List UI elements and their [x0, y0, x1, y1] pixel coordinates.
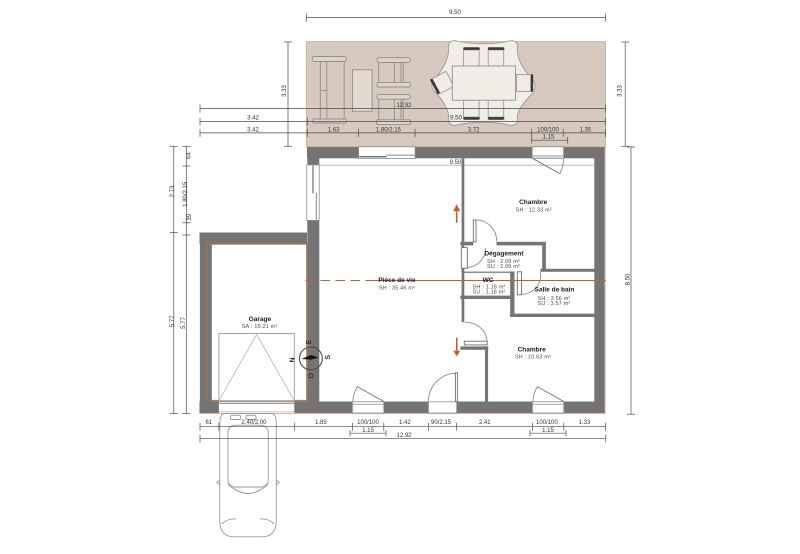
svg-text:3.42: 3.42: [247, 116, 259, 122]
svg-text:12.92: 12.92: [396, 103, 412, 109]
svg-text:SU : 2.09 m²: SU : 2.09 m²: [487, 264, 520, 270]
svg-text:5.77: 5.77: [170, 315, 176, 327]
svg-text:9.50: 9.50: [449, 10, 461, 16]
svg-text:9.50: 9.50: [450, 160, 462, 166]
svg-text:1.15: 1.15: [543, 135, 555, 141]
svg-text:3.33: 3.33: [618, 85, 624, 97]
svg-text:8.50: 8.50: [626, 273, 632, 285]
svg-text:1.15: 1.15: [542, 428, 554, 434]
svg-text:Dégagement: Dégagement: [484, 251, 524, 258]
svg-text:WC: WC: [483, 277, 494, 284]
svg-text:S: S: [325, 355, 332, 360]
svg-text:1.33: 1.33: [579, 420, 591, 426]
svg-text:2.41: 2.41: [479, 420, 491, 426]
svg-text:O: O: [308, 372, 315, 378]
svg-text:1.35: 1.35: [579, 128, 591, 134]
svg-text:100/100: 100/100: [357, 420, 379, 426]
svg-text:39: 39: [187, 213, 193, 220]
svg-text:64: 64: [187, 152, 193, 159]
svg-text:1.85: 1.85: [315, 420, 327, 426]
svg-text:1.42: 1.42: [399, 420, 411, 426]
svg-text:90/2.15: 90/2.15: [431, 420, 452, 426]
svg-text:1.63: 1.63: [328, 128, 340, 134]
svg-text:1.80/2.15: 1.80/2.15: [376, 128, 402, 134]
svg-text:Salle de bain: Salle de bain: [535, 287, 575, 294]
svg-text:2.73: 2.73: [170, 185, 176, 197]
svg-text:9.50: 9.50: [450, 115, 462, 121]
svg-text:E: E: [306, 339, 313, 344]
svg-text:1.80/2.15: 1.80/2.15: [183, 181, 189, 207]
svg-text:SH : 10.63 m²: SH : 10.63 m²: [515, 355, 551, 361]
svg-text:Chambre: Chambre: [518, 346, 547, 353]
svg-text:100/100: 100/100: [537, 128, 559, 134]
svg-text:SU : 3.57 m²: SU : 3.57 m²: [538, 301, 571, 307]
svg-text:3.42: 3.42: [247, 128, 259, 134]
svg-text:SA : 15.21 m²: SA : 15.21 m²: [242, 324, 278, 330]
svg-text:Chambre: Chambre: [519, 199, 548, 206]
svg-text:100/100: 100/100: [536, 420, 558, 426]
svg-text:2.40/2.00: 2.40/2.00: [241, 420, 267, 426]
svg-text:1.15: 1.15: [362, 428, 374, 434]
svg-text:61: 61: [205, 420, 212, 426]
svg-text:N: N: [290, 357, 297, 362]
svg-text:5.77: 5.77: [181, 317, 187, 329]
svg-text:Garage: Garage: [249, 316, 272, 323]
svg-text:Pièce de vie: Pièce de vie: [378, 277, 416, 284]
svg-text:SU : 1.18 m²: SU : 1.18 m²: [473, 290, 506, 296]
svg-text:3.33: 3.33: [282, 85, 288, 97]
svg-text:SH : 12.33 m²: SH : 12.33 m²: [516, 208, 552, 214]
svg-text:3.72: 3.72: [468, 128, 480, 134]
svg-text:SH : 35.46 m²: SH : 35.46 m²: [379, 285, 415, 291]
svg-text:12.92: 12.92: [396, 433, 412, 439]
